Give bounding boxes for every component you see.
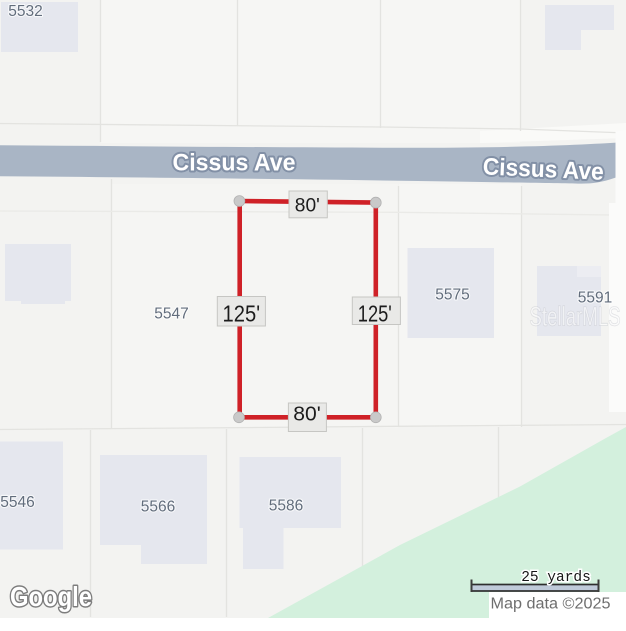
svg-text:80': 80' — [295, 194, 320, 216]
svg-text:StellarMLS: StellarMLS — [530, 302, 621, 332]
svg-text:80': 80' — [293, 402, 321, 425]
svg-text:Cissus Ave: Cissus Ave — [173, 150, 296, 177]
svg-text:5586: 5586 — [269, 498, 303, 515]
svg-text:Map data ©2025: Map data ©2025 — [491, 596, 611, 613]
svg-text:25 yards: 25 yards — [521, 570, 591, 586]
svg-text:Google: Google — [10, 581, 92, 612]
svg-text:125': 125' — [223, 300, 261, 326]
svg-text:Cissus Ave: Cissus Ave — [482, 153, 604, 185]
svg-text:5547: 5547 — [154, 306, 188, 323]
svg-text:5532: 5532 — [8, 3, 42, 20]
svg-text:5546: 5546 — [0, 494, 34, 511]
svg-text:125': 125' — [358, 300, 392, 326]
svg-text:5566: 5566 — [141, 499, 175, 516]
svg-text:5575: 5575 — [435, 287, 469, 304]
